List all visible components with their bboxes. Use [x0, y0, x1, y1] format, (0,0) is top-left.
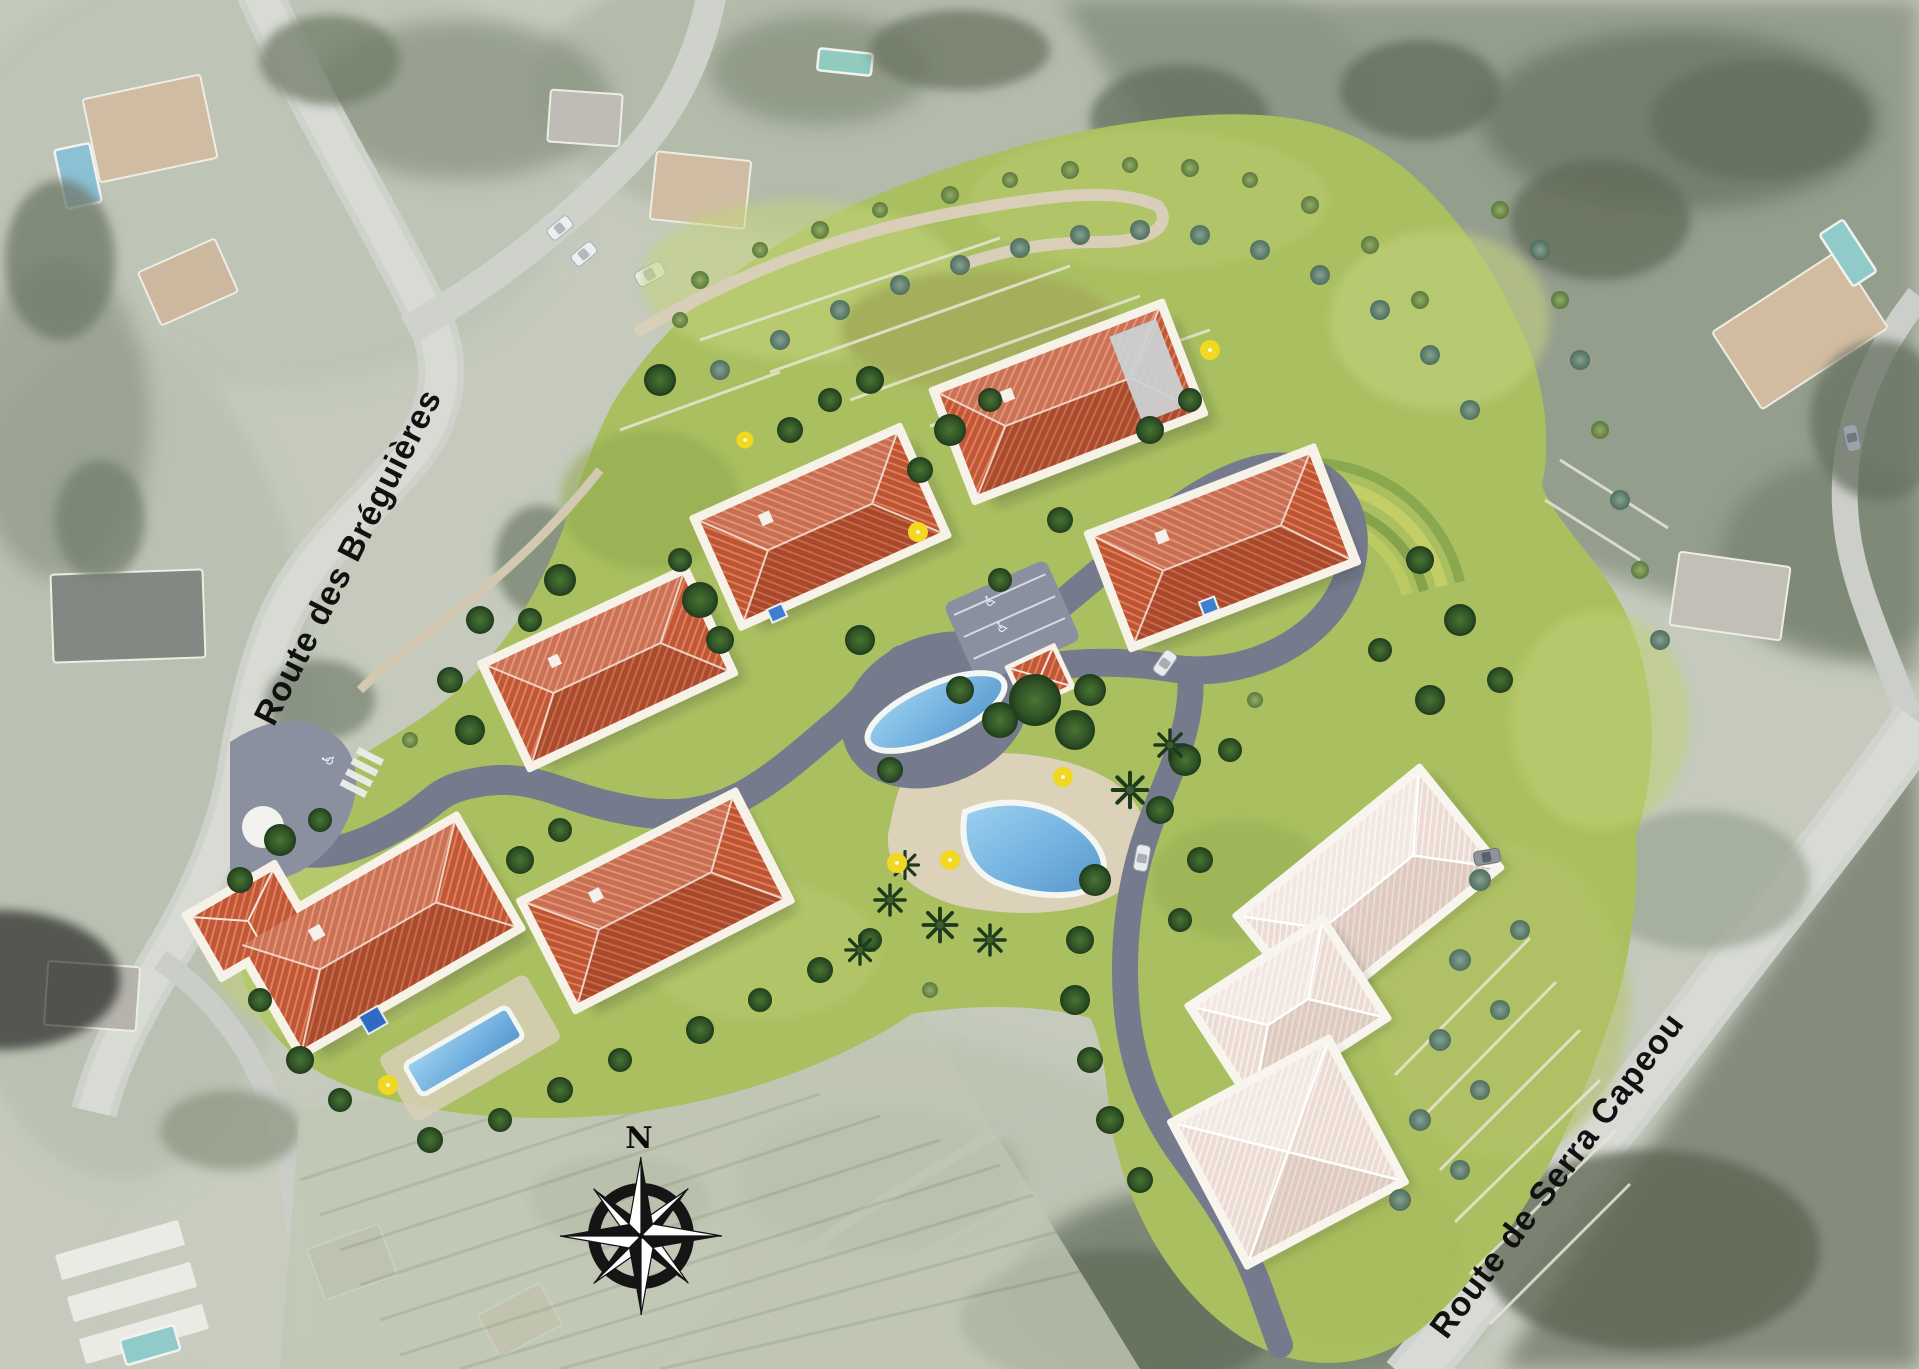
site-plan-canvas: ♿ ♿ ♿ [0, 0, 1919, 1369]
compass-north-label: N [625, 1121, 652, 1156]
site-plan-map: ♿ ♿ ♿ [0, 0, 1919, 1369]
